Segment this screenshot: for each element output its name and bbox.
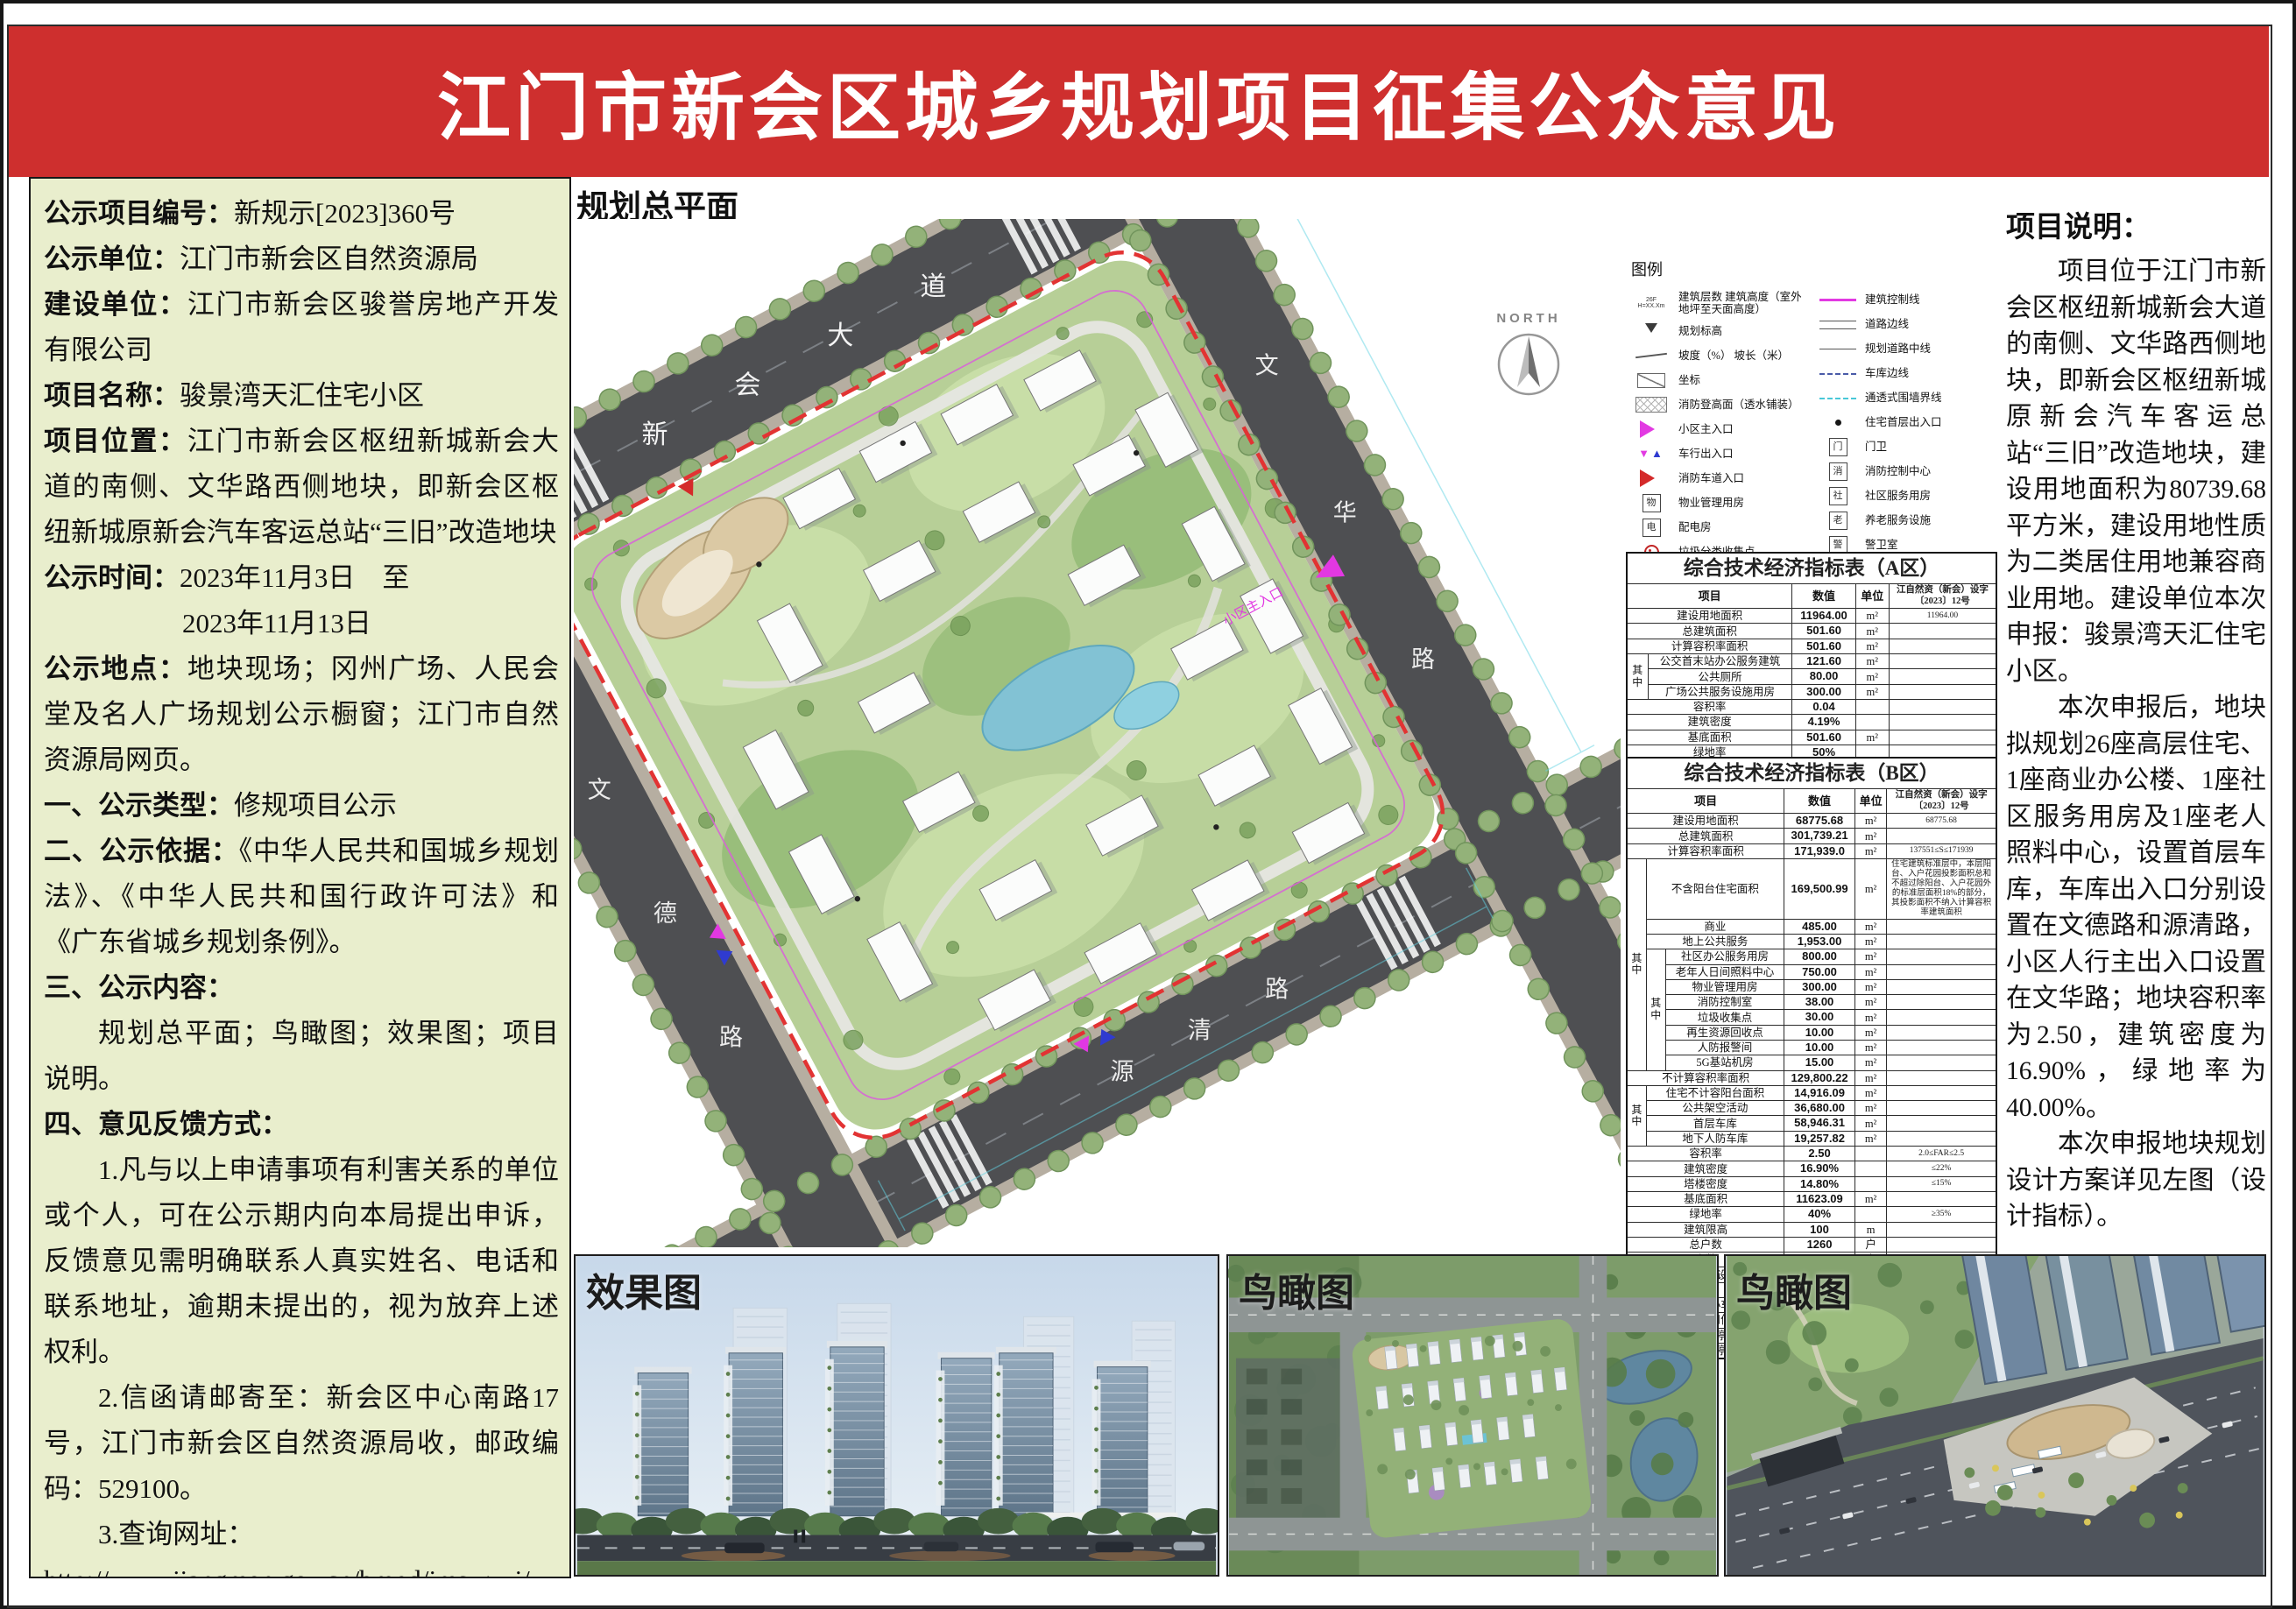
legend-item: 住宅首层出入口: [1818, 413, 1996, 432]
site-plan-map: 新会大道源清路文德路文华路小区主入口 NORTH: [574, 219, 1621, 1247]
table-cell: 基底面积: [1627, 1191, 1784, 1206]
table-cell: 基底面积: [1627, 730, 1792, 745]
dash-cyan-icon: [1818, 398, 1858, 399]
neighbor-housing: [1236, 1358, 1342, 1519]
notice-line: 3.查询网址：: [44, 1512, 559, 1557]
table-cell: 公交首末站办公服务建筑: [1648, 654, 1792, 669]
table-cell: m²: [1854, 1025, 1886, 1040]
legend-item: 电配电房: [1631, 519, 1809, 537]
notice-info-panel: 公示项目编号：新规示[2023]360号公示单位：江门市新会区自然资源局建设单位…: [29, 177, 571, 1578]
road-edge-icon: [1818, 321, 1858, 329]
legend-item: 坡度（%） 坡长（米）: [1631, 347, 1809, 365]
table-cell: [1854, 1161, 1886, 1176]
table-cell: 40%: [1784, 1207, 1855, 1222]
table-cell: 10.00: [1784, 1025, 1855, 1040]
table-cell: [1887, 934, 1996, 949]
table-cell: 其中: [1627, 859, 1646, 1071]
road-label-top: 新: [642, 420, 668, 449]
table-cell: [1889, 699, 1996, 714]
table-cell: 129,800.22: [1784, 1070, 1855, 1085]
notice-line: 规划总平面；鸟瞰图；效果图；项目说明。: [44, 1011, 559, 1102]
table-cell: 户: [1854, 1237, 1886, 1252]
legend-item-label: 消防控制中心: [1865, 465, 1931, 477]
table-cell: m²: [1854, 859, 1886, 920]
table-cell: 垃圾收集点: [1665, 1010, 1784, 1025]
table-cell: 其中: [1627, 1085, 1646, 1146]
table-cell: 11964.00: [1889, 609, 1996, 624]
table-cell: m²: [1854, 1191, 1886, 1206]
table-cell: m²: [1854, 814, 1886, 829]
road-label-right: 文: [1255, 353, 1279, 379]
table-cell: 2.50: [1784, 1147, 1855, 1161]
legend-item: 规划道路中线: [1818, 340, 1996, 358]
legend-item: 26FH=XX.Xm建筑层数 建筑高度（室外地坪至天面高度）: [1631, 291, 1809, 316]
notice-line: 一、公示类型：修规项目公示: [44, 783, 559, 829]
table-cell: 750.00: [1784, 964, 1855, 979]
table-cell: 江自然资（新会）设字〔2023〕12号: [1889, 584, 1996, 609]
table-cell: 江自然资（新会）设字〔2023〕12号: [1887, 789, 1996, 814]
table-cell: m²: [1855, 639, 1889, 653]
svg-text:NORTH: NORTH: [1496, 311, 1560, 326]
table-cell: [1887, 979, 1996, 994]
legend-item-label: 车行出入口: [1678, 448, 1734, 460]
hatch-icon: [1631, 397, 1671, 413]
table-cell: 68775.68: [1887, 814, 1996, 829]
table-cell: 建筑限高: [1627, 1222, 1784, 1237]
description-paragraph: 本次申报后，地块拟规划26座高层住宅、1座商业办公楼、1座社区服务用房及1座老人…: [2006, 690, 2266, 1126]
project-description: 项目说明： 项目位于江门市新会区枢纽新城新会大道的南侧、文华路西侧地块，即新会区…: [2006, 191, 2266, 1246]
table-cell: 485.00: [1784, 919, 1855, 934]
notice-line: 建设单位：江门市新会区骏誉房地产开发有限公司: [44, 282, 559, 373]
table-cell: 11623.09: [1784, 1191, 1855, 1206]
legend-item-label: 消防车道入口: [1678, 472, 1744, 484]
box-icon: 电: [1631, 519, 1671, 537]
page-title: 江门市新会区城乡规划项目征集公众意见: [437, 49, 1840, 155]
table-cell: 单位: [1854, 789, 1886, 814]
table-cell: 广场公共服务设施用房: [1648, 684, 1792, 699]
table-cell: 其中: [1646, 949, 1665, 1070]
table-cell: 地下人防车库: [1646, 1131, 1784, 1146]
table-cell: 0.04: [1792, 699, 1855, 714]
table-cell: ≤15%: [1887, 1176, 1996, 1191]
legend-item-label: 通透式围墙界线: [1865, 392, 1942, 404]
table-cell: 容积率: [1627, 1147, 1784, 1161]
table-cell: [1887, 1116, 1996, 1131]
road-label-left: 德: [653, 900, 677, 927]
table-cell: 建筑密度: [1627, 1161, 1784, 1176]
table-cell: m²: [1854, 1010, 1886, 1025]
legend-item: 门门卫: [1818, 438, 1996, 456]
table-cell: 再生资源回收点: [1665, 1025, 1784, 1040]
notice-line: 1.凡与以上申请事项有利害关系的单位或个人，可在公示期内向本局提出申诉，反馈意见…: [44, 1147, 559, 1375]
legend-item: 物物业管理用房: [1631, 494, 1809, 512]
table-cell: 社区办公服务用房: [1665, 949, 1784, 964]
table-cell: 30.00: [1784, 1010, 1855, 1025]
table-cell: [1887, 1222, 1996, 1237]
table-cell: m²: [1854, 979, 1886, 994]
table-cell: 总户数: [1627, 1237, 1784, 1252]
table-cell: 80.00: [1792, 669, 1855, 684]
table-cell: 住宅不计容阳台面积: [1646, 1085, 1784, 1100]
road-label-bottom: 路: [1265, 977, 1289, 1003]
tri-pair-icon: ▼▲: [1631, 447, 1671, 461]
legend-item: 通透式围墙界线: [1818, 389, 1996, 407]
road-label-bottom: 源: [1111, 1058, 1134, 1084]
table-title: 综合技术经济指标表（A区）: [1627, 553, 1996, 584]
line-magenta-icon: [1818, 299, 1858, 301]
notice-line: 公示单位：江门市新会区自然资源局: [44, 236, 559, 282]
dot-icon: [1818, 420, 1858, 426]
table-cell: 501.60: [1792, 730, 1855, 745]
legend-item: 消消防控制中心: [1818, 462, 1996, 481]
legend-item-label: 建筑控制线: [1865, 293, 1920, 306]
legend-item-label: 养老服务设施: [1865, 514, 1931, 526]
legend-item: ▼▲车行出入口: [1631, 445, 1809, 463]
table-cell: m²: [1854, 934, 1886, 949]
table-cell: 项目: [1627, 789, 1784, 814]
notice-line: 三、公示内容：: [44, 965, 559, 1011]
table-cell: 计算容积率面积: [1627, 843, 1784, 858]
table-cell: 容积率: [1627, 699, 1792, 714]
coord-icon: [1631, 373, 1671, 388]
legend-item-label: 道路边线: [1865, 318, 1909, 330]
table-cell: 36,680.00: [1784, 1101, 1855, 1116]
aerial-view-image: 鸟瞰图: [1226, 1254, 1719, 1577]
legend-item: 坐标: [1631, 371, 1809, 390]
table-cell: m: [1854, 1222, 1886, 1237]
table-cell: [1887, 919, 1996, 934]
table-cell: [1854, 1207, 1886, 1222]
project-description-body: 项目位于江门市新会区枢纽新城新会大道的南侧、文华路西侧地块，即新会区枢纽新城原新…: [2006, 254, 2266, 1236]
header-banner: 江门市新会区城乡规划项目征集公众意见: [9, 26, 2269, 177]
table-cell: m²: [1855, 730, 1889, 745]
table-cell: 不含阳台住宅面积: [1646, 859, 1784, 920]
table-cell: 物业管理用房: [1665, 979, 1784, 994]
road-label-top: 道: [920, 272, 946, 301]
notice-line: 公示时间：2023年11月3日 至: [44, 555, 559, 601]
legend-item: 建筑控制线: [1818, 291, 1996, 309]
table-cell: 800.00: [1784, 949, 1855, 964]
table-cell: [1855, 715, 1889, 730]
legend-item-label: 消防登高面（透水铺装）: [1678, 399, 1799, 411]
legend-item: 小区主入口: [1631, 420, 1809, 439]
table-cell: 15.00: [1784, 1055, 1855, 1070]
table-cell: [1887, 1191, 1996, 1206]
table-cell: m²: [1855, 624, 1889, 639]
table-cell: 首层车库: [1646, 1116, 1784, 1131]
table-cell: 2.0≤FAR≤2.5: [1887, 1147, 1996, 1161]
box-icon: 门: [1818, 438, 1858, 456]
table-cell: [1887, 949, 1996, 964]
table-cell: [1889, 639, 1996, 653]
legend-item-label: 小区主入口: [1678, 423, 1734, 435]
table-cell: 数值: [1784, 789, 1855, 814]
notice-line: 公示地点：地块现场；冈州广场、人民会堂及名人广场规划公示橱窗；江门市自然资源局网…: [44, 646, 559, 783]
legend-item-label: 物业管理用房: [1678, 497, 1744, 509]
table-cell: [1887, 1085, 1996, 1100]
table-cell: 19,257.82: [1784, 1131, 1855, 1146]
table-cell: 建设用地面积: [1627, 609, 1792, 624]
table-cell: 1,953.00: [1784, 934, 1855, 949]
tri-magenta-icon: [1631, 420, 1671, 438]
center-line-icon: [1818, 349, 1858, 349]
table-cell: [1889, 715, 1996, 730]
legend-item-label: 警卫室: [1865, 539, 1898, 551]
table-cell: 计算容积率面积: [1627, 639, 1792, 653]
table-cell: m²: [1854, 1085, 1886, 1100]
table-cell: 171,939.0: [1784, 843, 1855, 858]
legend-item-label: 住宅首层出入口: [1865, 416, 1942, 428]
station-aerial-image: 鸟瞰图: [1724, 1254, 2266, 1577]
legend-item-label: 规划标高: [1678, 325, 1722, 337]
station-aerial-label: 鸟瞰图: [1736, 1261, 1852, 1317]
notice-line: 公示项目编号：新规示[2023]360号: [44, 191, 559, 236]
notice-line: http://www.jiangmen.gov.cn/bmpd/jmszrzyj…: [44, 1557, 559, 1578]
table-cell: [1887, 829, 1996, 843]
table-cell: 公共架空活动: [1646, 1101, 1784, 1116]
table-cell: [1854, 1176, 1886, 1191]
rendering-image: 效果图: [574, 1254, 1219, 1577]
table-cell: 1260: [1784, 1237, 1855, 1252]
table-cell: [1887, 1101, 1996, 1116]
table-cell: m²: [1854, 995, 1886, 1010]
table-cell: 11964.00: [1792, 609, 1855, 624]
dash-gray-icon: [1818, 373, 1858, 375]
table-cell: m²: [1854, 843, 1886, 858]
legend-item-label: 坐标: [1678, 374, 1700, 386]
table-cell: 169,500.99: [1784, 859, 1855, 920]
table-cell: [1889, 624, 1996, 639]
table-cell: 14.80%: [1784, 1176, 1855, 1191]
legend-title: 图例: [1631, 258, 1996, 280]
table-cell: 100: [1784, 1222, 1855, 1237]
table-cell: m²: [1855, 654, 1889, 669]
table-cell: 塔楼密度: [1627, 1176, 1784, 1191]
road-label-right: 华: [1333, 499, 1357, 526]
notice-line: 2.信函请邮寄至：新会区中心南路17号，江门市新会区自然资源局收，邮政编码：52…: [44, 1375, 559, 1512]
table-cell: 老年人日间照料中心: [1665, 964, 1784, 979]
table-cell: [1887, 1070, 1996, 1085]
project-description-title: 项目说明：: [2006, 203, 2266, 245]
table-cell: [1887, 1010, 1996, 1025]
legend-item-label: 配电房: [1678, 521, 1712, 533]
table-cell: 300.00: [1784, 979, 1855, 994]
tri-red-icon: [1631, 469, 1671, 487]
table-cell: 4.19%: [1792, 715, 1855, 730]
table-cell: m²: [1854, 964, 1886, 979]
legend-item-label: 车库边线: [1865, 367, 1909, 379]
slope-icon: [1631, 355, 1671, 356]
table-cell: [1889, 669, 1996, 684]
table-cell: m²: [1855, 669, 1889, 684]
table-cell: [1887, 1237, 1996, 1252]
table-cell: 地上公共服务: [1646, 934, 1784, 949]
table-cell: m²: [1854, 1040, 1886, 1055]
legend-columns: 26FH=XX.Xm建筑层数 建筑高度（室外地坪至天面高度）规划标高坡度（%） …: [1631, 291, 1996, 586]
aerial-view-label: 鸟瞰图: [1239, 1261, 1354, 1317]
table-cell: m²: [1854, 1055, 1886, 1070]
table-cell: 501.60: [1792, 639, 1855, 653]
table-cell: 项目: [1627, 584, 1792, 609]
table-cell: 总建筑面积: [1627, 624, 1792, 639]
table-cell: ≤22%: [1887, 1161, 1996, 1176]
table-cell: [1887, 1131, 1996, 1146]
notice-line: 四、意见反馈方式：: [44, 1102, 559, 1147]
table-cell: [1889, 684, 1996, 699]
table-cell: [1887, 995, 1996, 1010]
table-cell: 121.60: [1792, 654, 1855, 669]
road-label-bottom: 清: [1188, 1017, 1212, 1043]
table-cell: 16.90%: [1784, 1161, 1855, 1176]
table-cell: [1855, 699, 1889, 714]
table-cell: m²: [1854, 949, 1886, 964]
legend-item-label: 规划道路中线: [1865, 342, 1931, 355]
table-cell: m²: [1854, 1131, 1886, 1146]
legend-item-label: 坡度（%） 坡长（米）: [1678, 349, 1789, 362]
legend-item-label: 社区服务用房: [1865, 490, 1931, 502]
road-label-top: 大: [827, 321, 853, 350]
table-cell: 建筑密度: [1627, 715, 1792, 730]
table-cell: [1887, 964, 1996, 979]
box-icon: 消: [1818, 462, 1858, 481]
notice-line: 二、公示依据：《中华人民共和国城乡规划法》、《中华人民共和国行政许可法》和《广东…: [44, 829, 559, 965]
table-title: 综合技术经济指标表（B区）: [1627, 758, 1996, 789]
road-label-right: 路: [1411, 646, 1435, 673]
description-paragraph: 项目位于江门市新会区枢纽新城新会大道的南侧、文华路西侧地块，即新会区枢纽新城原新…: [2006, 254, 2266, 690]
notice-info-lines: 公示项目编号：新规示[2023]360号公示单位：江门市新会区自然资源局建设单位…: [44, 191, 559, 1578]
table-cell: ≥35%: [1887, 1207, 1996, 1222]
table-cell: 商业: [1646, 919, 1784, 934]
table-cell: [1889, 654, 1996, 669]
legend-item-label: 建筑层数 建筑高度（室外地坪至天面高度）: [1678, 291, 1809, 316]
rendering-label: 效果图: [586, 1261, 702, 1317]
table-cell: 单位: [1855, 584, 1889, 609]
legend-panel: 图例 26FH=XX.Xm建筑层数 建筑高度（室外地坪至天面高度）规划标高坡度（…: [1631, 258, 1996, 550]
table-cell: [1854, 1147, 1886, 1161]
table-cell: 5G基站机房: [1665, 1055, 1784, 1070]
legend-item: 道路边线: [1818, 315, 1996, 334]
table-cell: 58,946.31: [1784, 1116, 1855, 1131]
table-cell: m²: [1854, 829, 1886, 843]
table-cell: m²: [1855, 609, 1889, 624]
table-cell: 消防控制室: [1665, 995, 1784, 1010]
legend-item: 规划标高: [1631, 322, 1809, 341]
box-icon: 物: [1631, 494, 1671, 512]
notice-poster: 江门市新会区城乡规划项目征集公众意见 公示项目编号：新规示[2023]360号公…: [0, 0, 2296, 1609]
table-cell: m²: [1854, 1116, 1886, 1131]
table-cell: m²: [1854, 919, 1886, 934]
description-paragraph: 本次申报地块规划设计方案详见左图（设计指标）。: [2006, 1126, 2266, 1236]
table-cell: 总建筑面积: [1627, 829, 1784, 843]
table-cell: 数值: [1792, 584, 1855, 609]
legend-item-label: 门卫: [1865, 441, 1887, 453]
table-cell: 人防报警间: [1665, 1040, 1784, 1055]
legend-item: 消防登高面（透水铺装）: [1631, 396, 1809, 414]
table-cell: 绿地率: [1627, 1207, 1784, 1222]
table-cell: 10.00: [1784, 1040, 1855, 1055]
aerial-site: [1351, 1317, 1593, 1539]
notice-line: 项目名称：骏景湾天汇住宅小区: [44, 373, 559, 419]
table-cell: m²: [1854, 1070, 1886, 1085]
legend-item: 老养老服务设施: [1818, 512, 1996, 530]
table-cell: 38.00: [1784, 995, 1855, 1010]
legend-item: 消防车道入口: [1631, 469, 1809, 488]
elev-icon: [1631, 323, 1671, 339]
box-icon: 社: [1818, 487, 1858, 505]
road-label-top: 会: [734, 371, 760, 400]
table-cell: 300.00: [1792, 684, 1855, 699]
table-cell: 137551≤S≤171939: [1887, 843, 1996, 858]
table-cell: 住宅建筑标准层中，本层阳台、入户花园投影面积总和不超过除阳台、入户花园外的标准层…: [1887, 859, 1996, 920]
table-cell: 建设用地面积: [1627, 814, 1784, 829]
floors-icon: 26FH=XX.Xm: [1631, 297, 1671, 310]
indicator-table-a: 综合技术经济指标表（A区）项目数值单位江自然资（新会）设字〔2023〕12号建设…: [1626, 552, 1997, 792]
box-icon: 老: [1818, 512, 1858, 530]
table-cell: 不计算容积率面积: [1627, 1070, 1784, 1085]
table-cell: 其中: [1627, 654, 1648, 700]
table-cell: m²: [1854, 1101, 1886, 1116]
table-cell: 14,916.09: [1784, 1085, 1855, 1100]
table-cell: [1887, 1055, 1996, 1070]
legend-item: 社社区服务用房: [1818, 487, 1996, 505]
notice-line: 项目位置：江门市新会区枢纽新城新会大道的南侧、文华路西侧地块，即新会区枢纽新城原…: [44, 419, 559, 555]
table-cell: [1889, 730, 1996, 745]
table-cell: [1887, 1040, 1996, 1055]
road-label-left: 路: [719, 1025, 743, 1051]
table-cell: m²: [1855, 684, 1889, 699]
table-cell: 301,739.21: [1784, 829, 1855, 843]
table-cell: 公共厕所: [1648, 669, 1792, 684]
road-label-left: 文: [588, 777, 611, 803]
table-cell: 68775.68: [1784, 814, 1855, 829]
table-cell: 501.60: [1792, 624, 1855, 639]
notice-line: 2023年11月13日: [44, 601, 559, 646]
table-cell: [1887, 1025, 1996, 1040]
legend-item: 车库边线: [1818, 364, 1996, 383]
